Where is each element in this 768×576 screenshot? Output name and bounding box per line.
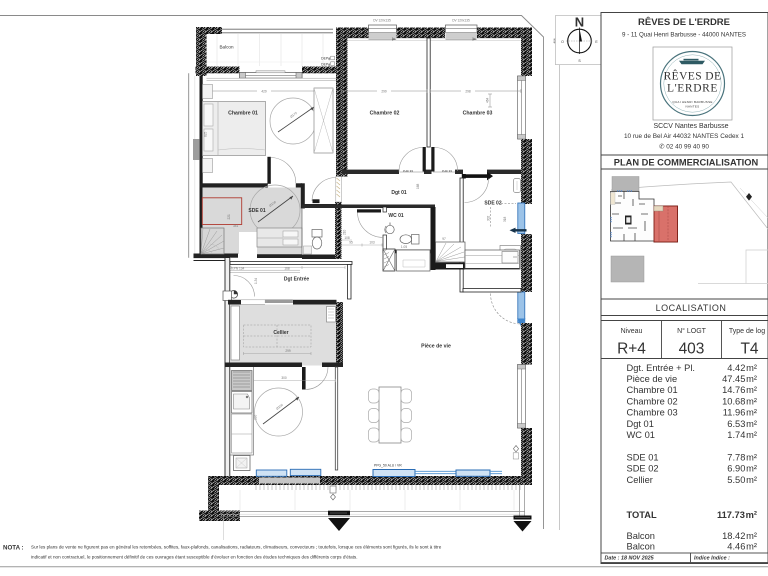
- svg-text:SDE 01: SDE 01: [248, 208, 265, 214]
- svg-text:10 rue de Bel Air 44032 NANTES: 10 rue de Bel Air 44032 NANTES Cedex 1: [624, 133, 745, 140]
- svg-text:WC 01: WC 01: [627, 430, 655, 440]
- svg-text:Type de log: Type de log: [729, 328, 765, 335]
- svg-text:10.68 m²: 10.68 m²: [722, 396, 757, 406]
- svg-text:NOTA :: NOTA :: [3, 545, 24, 552]
- svg-text:Niveau: Niveau: [621, 328, 643, 335]
- svg-text:RÊVES DE: RÊVES DE: [664, 69, 722, 83]
- svg-text:Dgt 01: Dgt 01: [391, 190, 407, 196]
- svg-text:14.76 m²: 14.76 m²: [722, 385, 757, 395]
- svg-text:298: 298: [465, 90, 471, 94]
- svg-text:Chambre 01: Chambre 01: [627, 385, 678, 395]
- svg-text:95: 95: [349, 241, 353, 245]
- svg-text:Balcon: Balcon: [627, 541, 655, 551]
- svg-text:PPG_50 ALU / VR: PPG_50 ALU / VR: [374, 464, 402, 468]
- svg-text:Dgt 01: Dgt 01: [627, 419, 654, 429]
- svg-text:indicatif et non contractuel,: indicatif et non contractuel, le positio…: [31, 555, 358, 560]
- svg-text:1.34: 1.34: [254, 278, 258, 284]
- svg-text:Chambre 02: Chambre 02: [370, 111, 400, 117]
- svg-text:R+4: R+4: [617, 341, 646, 358]
- svg-text:168: 168: [284, 266, 290, 270]
- svg-text:210: 210: [343, 229, 347, 235]
- svg-text:117.73 m²: 117.73 m²: [717, 510, 757, 520]
- svg-text:Chambre 01: Chambre 01: [228, 111, 258, 117]
- svg-text:47.45 m²: 47.45 m²: [722, 374, 757, 384]
- svg-text:0.PN 134: 0.PN 134: [231, 266, 245, 270]
- svg-text:Dgt Entrée: Dgt Entrée: [284, 277, 310, 283]
- svg-text:Chambre 03: Chambre 03: [627, 408, 678, 418]
- svg-text:1.05: 1.05: [401, 245, 407, 249]
- svg-text:Cellier: Cellier: [627, 475, 653, 485]
- svg-text:Pièce de vie: Pièce de vie: [627, 374, 678, 384]
- svg-text:N: N: [575, 15, 584, 30]
- svg-text:300: 300: [281, 376, 287, 380]
- svg-text:Chambre 03: Chambre 03: [463, 111, 493, 117]
- svg-text:221: 221: [227, 214, 231, 220]
- svg-text:Cellier: Cellier: [273, 330, 288, 336]
- svg-text:341: 341: [233, 224, 239, 228]
- svg-text:18.42 m²: 18.42 m²: [722, 531, 757, 541]
- svg-text:Pièce de vie: Pièce de vie: [421, 344, 451, 350]
- svg-text:DEPϕ: DEPϕ: [321, 57, 330, 61]
- svg-text:9 - 11 Quai Henri Barbusse - 4: 9 - 11 Quai Henri Barbusse - 44000 NANTE…: [622, 32, 746, 39]
- svg-text:WC 01: WC 01: [388, 213, 404, 219]
- svg-text:103: 103: [369, 241, 375, 245]
- svg-text:Dgt. Entrée + Pl.: Dgt. Entrée + Pl.: [627, 363, 695, 373]
- svg-text:SDE 02: SDE 02: [627, 464, 659, 474]
- svg-text:✆ 02 40 99 40 90: ✆ 02 40 99 40 90: [659, 144, 709, 151]
- svg-text:NANTES: NANTES: [686, 105, 700, 109]
- svg-text:Balcon: Balcon: [627, 531, 655, 541]
- svg-text:299: 299: [381, 90, 387, 94]
- svg-text:318: 318: [503, 216, 507, 222]
- svg-text:O: O: [561, 40, 564, 44]
- svg-text:Indice Indice :: Indice Indice :: [694, 556, 730, 562]
- svg-text:Balcon: Balcon: [219, 45, 233, 50]
- svg-text:97: 97: [442, 237, 446, 241]
- svg-text:825: 825: [204, 131, 208, 137]
- svg-text:TOTAL: TOTAL: [627, 510, 657, 520]
- svg-text:302: 302: [487, 215, 491, 221]
- svg-text:Sur les plans de vente ne figu: Sur les plans de vente ne figurent pas e…: [31, 545, 442, 550]
- svg-text:4.46 m²: 4.46 m²: [727, 541, 757, 551]
- svg-text:429: 429: [261, 90, 267, 94]
- svg-text:DV 120x135: DV 120x135: [373, 19, 391, 23]
- svg-text:1.74 m²: 1.74 m²: [727, 430, 757, 440]
- svg-text:LOCALISATION: LOCALISATION: [656, 303, 727, 313]
- svg-text:SDE 01: SDE 01: [627, 452, 659, 462]
- svg-text:L'ERDRE: L'ERDRE: [667, 83, 718, 95]
- svg-text:6.90 m²: 6.90 m²: [727, 464, 757, 474]
- svg-text:PLAN DE COMMERCIALISATION: PLAN DE COMMERCIALISATION: [614, 158, 759, 168]
- svg-text:Chambre 02: Chambre 02: [627, 396, 678, 406]
- svg-text:RÊVES DE L'ERDRE: RÊVES DE L'ERDRE: [638, 16, 730, 28]
- svg-text:299: 299: [285, 349, 291, 353]
- svg-text:SCCV Nantes Barbusse: SCCV Nantes Barbusse: [653, 123, 728, 130]
- svg-text:7.78 m²: 7.78 m²: [727, 452, 757, 462]
- svg-text:SDE 02: SDE 02: [484, 201, 501, 207]
- svg-text:6.53 m²: 6.53 m²: [727, 419, 757, 429]
- svg-text:11.96 m²: 11.96 m²: [723, 408, 757, 418]
- svg-text:5.50 m²: 5.50 m²: [727, 475, 757, 485]
- svg-text:T4: T4: [740, 341, 758, 358]
- svg-text:P.AF 93: P.AF 93: [403, 169, 413, 173]
- svg-text:Date : 18 NOV 2025: Date : 18 NOV 2025: [605, 556, 655, 562]
- svg-text:108: 108: [344, 236, 350, 240]
- svg-text:168: 168: [416, 183, 420, 189]
- svg-text:DV 120x135: DV 120x135: [452, 19, 470, 23]
- svg-text:464: 464: [486, 97, 490, 103]
- svg-text:403: 403: [679, 341, 705, 358]
- svg-text:DEPϕ: DEPϕ: [321, 63, 330, 67]
- svg-text:P.AF 93: P.AF 93: [442, 169, 452, 173]
- svg-text:4.42 m²: 4.42 m²: [727, 363, 757, 373]
- svg-text:N° LOGT: N° LOGT: [677, 327, 707, 335]
- svg-text:QUAI HENRI BARBUSSE: QUAI HENRI BARBUSSE: [672, 100, 712, 104]
